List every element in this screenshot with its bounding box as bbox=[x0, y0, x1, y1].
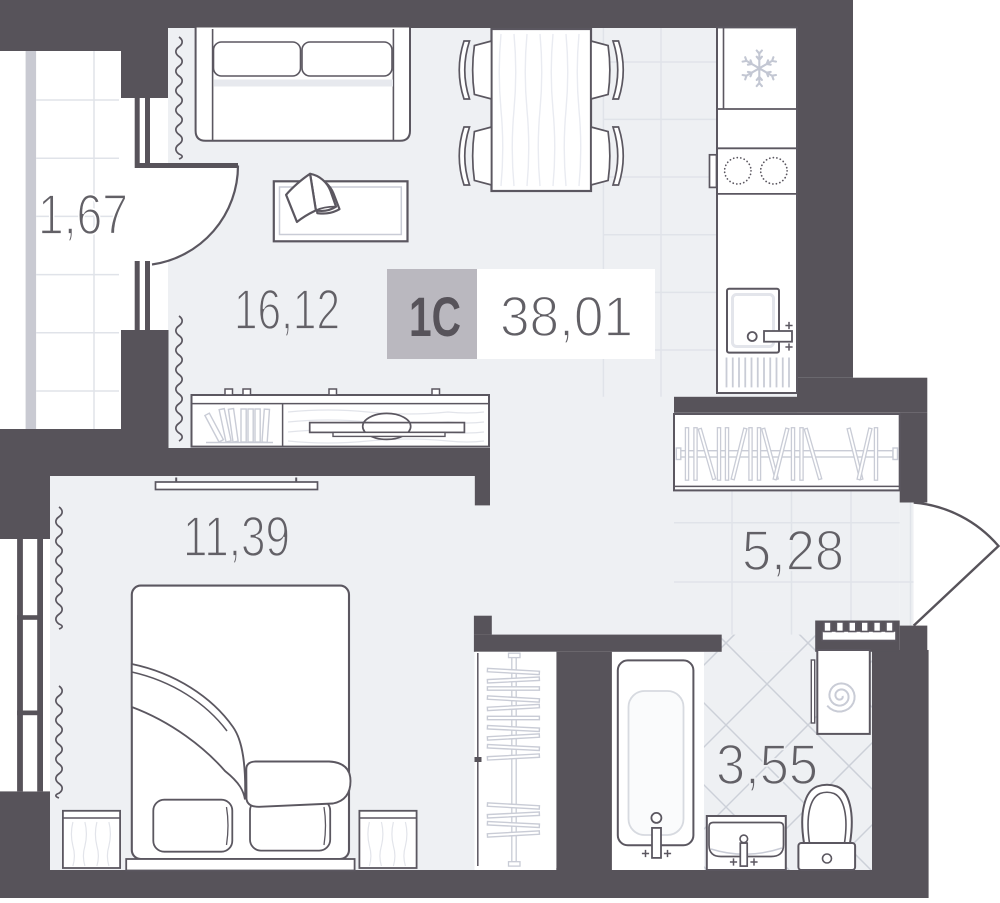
svg-text:1C: 1C bbox=[409, 285, 461, 348]
svg-text:1,67: 1,67 bbox=[38, 183, 128, 247]
svg-text:3,55: 3,55 bbox=[716, 733, 818, 797]
svg-text:11,39: 11,39 bbox=[183, 505, 290, 569]
svg-text:5,28: 5,28 bbox=[742, 519, 844, 583]
svg-text:16,12: 16,12 bbox=[234, 278, 340, 342]
svg-text:38,01: 38,01 bbox=[500, 285, 633, 349]
